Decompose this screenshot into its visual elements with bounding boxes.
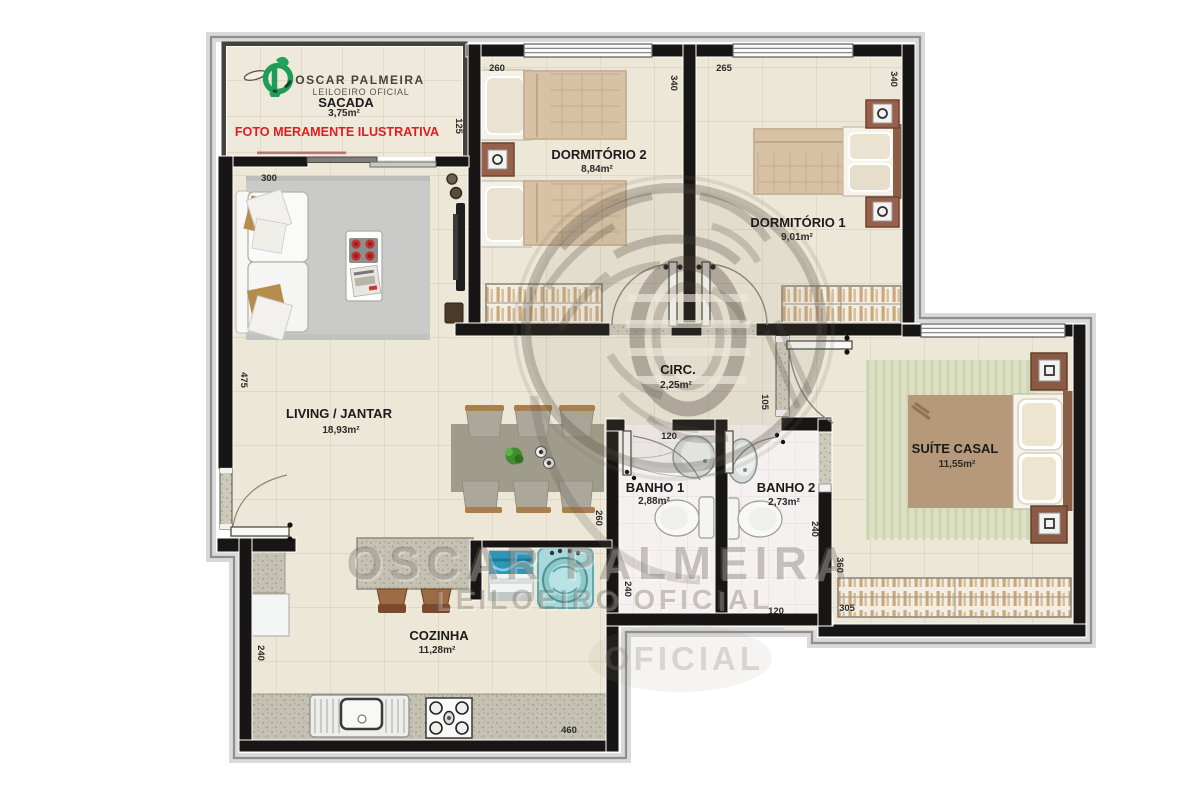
svg-text:OSCAR PALMEIRA: OSCAR PALMEIRA [295, 73, 424, 87]
svg-text:460: 460 [561, 725, 577, 736]
svg-text:LIVING / JANTAR: LIVING / JANTAR [286, 406, 393, 421]
svg-text:120: 120 [661, 431, 677, 442]
svg-text:DORMITÓRIO 2: DORMITÓRIO 2 [551, 147, 646, 162]
svg-text:340: 340 [668, 75, 679, 91]
svg-text:FOTO MERAMENTE ILUSTRATIVA: FOTO MERAMENTE ILUSTRATIVA [235, 125, 439, 139]
svg-text:125: 125 [453, 118, 464, 135]
svg-text:2,88m²: 2,88m² [638, 496, 670, 507]
svg-text:8,84m²: 8,84m² [581, 164, 613, 175]
svg-text:11,28m²: 11,28m² [419, 645, 456, 656]
svg-text:2,73m²: 2,73m² [768, 497, 800, 508]
svg-text:260: 260 [489, 63, 505, 74]
svg-text:360: 360 [834, 557, 845, 573]
svg-text:OFICIAL: OFICIAL [604, 640, 764, 677]
svg-text:3,75m²: 3,75m² [328, 108, 360, 119]
svg-text:240: 240 [809, 521, 820, 537]
svg-text:300: 300 [261, 173, 277, 184]
svg-text:2,25m²: 2,25m² [660, 380, 692, 391]
svg-text:340: 340 [888, 71, 899, 87]
svg-text:CIRC.: CIRC. [660, 362, 695, 377]
svg-text:BANHO 2: BANHO 2 [757, 480, 816, 495]
svg-text:265: 265 [716, 63, 733, 74]
svg-text:105: 105 [759, 394, 770, 411]
svg-text:COZINHA: COZINHA [409, 628, 469, 643]
svg-text:OSCAR PALMEIRA: OSCAR PALMEIRA [347, 537, 854, 589]
svg-text:LEILOEIRO OFICIAL: LEILOEIRO OFICIAL [435, 584, 774, 615]
svg-text:DORMITÓRIO 1: DORMITÓRIO 1 [750, 215, 845, 230]
svg-text:11,55m²: 11,55m² [939, 459, 976, 470]
svg-text:SUÍTE CASAL: SUÍTE CASAL [912, 441, 999, 456]
svg-text:305: 305 [839, 603, 856, 614]
svg-text:240: 240 [622, 581, 633, 597]
svg-text:18,93m²: 18,93m² [322, 425, 360, 436]
svg-text:475: 475 [238, 372, 249, 389]
svg-text:240: 240 [255, 645, 266, 661]
svg-text:9,01m²: 9,01m² [781, 232, 813, 243]
svg-text:260: 260 [593, 510, 604, 526]
svg-text:BANHO 1: BANHO 1 [626, 480, 685, 495]
svg-text:120: 120 [768, 606, 784, 617]
